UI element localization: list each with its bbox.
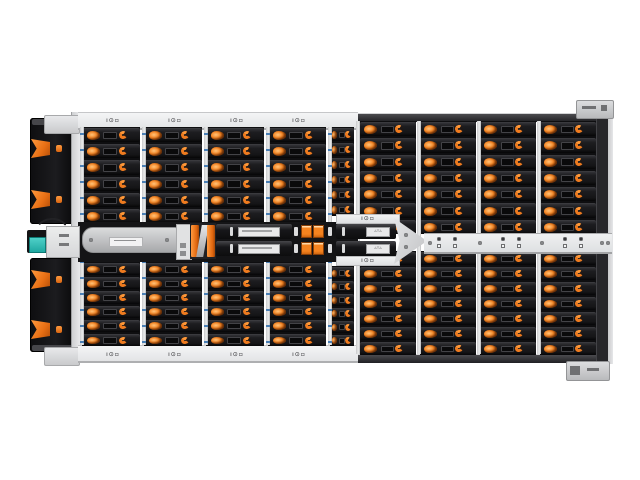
drive-slot <box>165 180 179 187</box>
drive-slot <box>103 132 117 139</box>
drive-column <box>206 127 264 223</box>
io-marker-icon <box>452 237 458 249</box>
drive-slot <box>165 266 179 272</box>
drive-bay <box>268 128 326 142</box>
drive-bay <box>82 193 140 207</box>
drive-bay <box>540 282 596 295</box>
io-marker-icon <box>562 237 568 249</box>
drive-column <box>330 266 354 346</box>
marker-square <box>517 244 521 248</box>
drive-column <box>206 262 264 346</box>
drive-bay <box>420 203 476 217</box>
bezel-latch-dot-icon <box>56 276 62 283</box>
drive-bay <box>360 342 416 355</box>
io-marker-icon <box>500 237 506 249</box>
drive-slot <box>501 271 514 278</box>
drive-bay <box>480 171 536 185</box>
drive-slot <box>289 180 303 187</box>
drive-slot <box>289 337 303 343</box>
drive-bay <box>540 155 596 169</box>
drive-bay <box>144 193 202 207</box>
drive-slot <box>165 213 179 220</box>
drive-bay <box>206 291 264 303</box>
drive-bay <box>206 128 264 142</box>
drive-bay <box>420 155 476 169</box>
drive-column <box>540 121 596 234</box>
marker-circle <box>563 237 567 241</box>
drive-slot <box>381 271 394 278</box>
storage-enclosure-photo: ı⊙▫ı⊙▫ı⊙▫ı⊙▫ ı⊙▫ı⊙▫ı⊙▫ı⊙▫ <box>0 0 640 480</box>
drive-bay <box>360 138 416 152</box>
drive-slot <box>381 126 394 133</box>
drive-bay <box>206 193 264 207</box>
drive-slot <box>441 286 454 293</box>
bezel-latch-dot-icon <box>56 145 62 152</box>
drive-slot <box>501 301 514 308</box>
drive-slot <box>103 266 117 272</box>
marker-circle <box>437 237 441 241</box>
drive-bay <box>360 327 416 340</box>
drive-slot <box>165 323 179 329</box>
drive-slot <box>103 337 117 343</box>
drive-bay <box>330 128 354 141</box>
drive-bay <box>480 297 536 310</box>
drive-bay <box>420 122 476 136</box>
drive-slot <box>165 295 179 301</box>
drive-slot <box>227 323 241 329</box>
drive-slot <box>227 281 241 287</box>
drive-bay <box>144 334 202 346</box>
drive-slot <box>501 175 514 182</box>
drive-slot <box>165 197 179 204</box>
drive-slot <box>501 286 514 293</box>
drive-slot <box>165 148 179 155</box>
drive-slot <box>339 297 345 303</box>
drive-bay <box>330 267 354 279</box>
drive-slot <box>165 281 179 287</box>
drive-slot <box>441 126 454 133</box>
drive-bay <box>206 144 264 158</box>
drive-bay <box>206 177 264 191</box>
drive-bay <box>540 187 596 201</box>
drive-bay <box>480 220 536 234</box>
right-mid-rail <box>424 233 612 254</box>
drive-slot <box>339 338 345 344</box>
drive-slot <box>339 324 345 330</box>
drive-slot <box>561 316 574 323</box>
drive-bay <box>144 291 202 303</box>
handle-bar <box>207 225 215 257</box>
drive-bay <box>420 312 476 325</box>
io-marker-icon <box>436 237 442 249</box>
bezel-latch-icon <box>31 190 50 209</box>
bezel-latch-icon <box>31 320 50 339</box>
drive-column <box>360 251 416 355</box>
drive-slot <box>381 175 394 182</box>
drive-slot <box>441 191 454 198</box>
drive-slot <box>339 162 345 169</box>
drive-slot <box>501 256 514 263</box>
marker-circle <box>453 237 457 241</box>
drive-bay <box>540 342 596 355</box>
drive-slot <box>441 271 454 278</box>
drive-slot <box>561 191 574 198</box>
drive-bay <box>82 144 140 158</box>
drive-bay <box>144 160 202 174</box>
drive-slot <box>441 316 454 323</box>
screw-icon <box>606 241 610 245</box>
drive-slot <box>339 311 345 317</box>
drive-bay <box>82 291 140 303</box>
drive-bay <box>268 209 326 223</box>
drive-bay <box>420 267 476 280</box>
drive-slot <box>561 331 574 338</box>
io-marker-icon: ı⊙▫ <box>292 118 306 124</box>
drive-slot <box>289 148 303 155</box>
drive-slot <box>441 158 454 165</box>
io-marker-icon: ı⊙▫ <box>361 257 375 264</box>
drive-slot <box>339 192 345 199</box>
drive-bay <box>268 177 326 191</box>
drive-bay <box>82 334 140 346</box>
drive-slot <box>289 323 303 329</box>
screw-icon <box>165 238 169 242</box>
drive-slot <box>289 309 303 315</box>
drive-slot <box>339 132 345 139</box>
drive-bay <box>268 160 326 174</box>
drive-slot <box>381 286 394 293</box>
drive-bay <box>206 263 264 275</box>
screw-icon <box>540 241 544 245</box>
io-marker-icon <box>516 237 522 249</box>
drive-column <box>330 127 354 216</box>
drive-bay <box>360 171 416 185</box>
drive-bay <box>360 187 416 201</box>
drive-bay <box>144 128 202 142</box>
drive-column <box>82 262 140 346</box>
drive-bay <box>420 342 476 355</box>
drive-bay <box>330 308 354 320</box>
drive-slot <box>441 224 454 231</box>
drive-slot <box>227 337 241 343</box>
drive-bay <box>330 281 354 293</box>
screw-icon <box>404 233 408 237</box>
drive-bay <box>480 203 536 217</box>
screw-icon <box>428 241 432 245</box>
drive-column <box>420 251 476 355</box>
drive-bay <box>540 312 596 325</box>
bottom-rail: ı⊙▫ı⊙▫ı⊙▫ı⊙▫ <box>78 345 358 363</box>
drive-slot <box>501 158 514 165</box>
drive-bay <box>480 187 536 201</box>
drive-slot <box>561 207 574 214</box>
drive-slot <box>441 331 454 338</box>
drive-bay <box>206 320 264 332</box>
drive-column <box>82 127 140 223</box>
drive-bay <box>360 122 416 136</box>
drive-slot <box>339 147 345 154</box>
drive-slot <box>381 346 394 353</box>
drive-bay <box>330 143 354 156</box>
bezel-latch-icon <box>31 139 50 158</box>
marker-square <box>579 244 583 248</box>
drive-slot <box>501 126 514 133</box>
marker-circle <box>517 237 521 241</box>
drive-bay <box>206 306 264 318</box>
rack-bracket-bottom-right <box>566 361 610 381</box>
drive-bay <box>206 277 264 289</box>
io-marker-icon: ı⊙▫ <box>230 352 244 358</box>
drive-slot <box>339 270 345 276</box>
marker-strip: ı⊙▫ <box>336 214 400 224</box>
drive-column <box>480 121 536 234</box>
drive-slot <box>103 164 117 171</box>
drive-column <box>480 251 536 355</box>
drive-bay <box>82 128 140 142</box>
drive-slot <box>381 331 394 338</box>
screw-icon <box>89 238 93 242</box>
drive-bay <box>360 155 416 169</box>
drive-column <box>144 262 202 346</box>
orange-latch-handle <box>190 223 216 259</box>
drive-bay <box>144 263 202 275</box>
drive-slot <box>561 224 574 231</box>
drive-slot <box>501 142 514 149</box>
canister-label: ▵▿▵ <box>366 227 390 237</box>
drive-slot <box>289 164 303 171</box>
drive-bay <box>206 334 264 346</box>
bezel-latch-icon <box>31 270 50 289</box>
qsfp-teal-pull-tab <box>29 237 46 253</box>
drive-bay <box>480 282 536 295</box>
drive-slot <box>501 191 514 198</box>
io-marker-icon: ı⊙▫ <box>106 352 120 358</box>
drive-bay <box>268 263 326 275</box>
drive-slot <box>561 256 574 263</box>
drive-bay <box>330 188 354 201</box>
drive-slot <box>381 316 394 323</box>
marker-circle <box>579 237 583 241</box>
bezel-latch-dot-icon <box>56 326 62 333</box>
slide-rail <box>82 227 178 253</box>
drive-bay <box>144 177 202 191</box>
drive-slot <box>103 323 117 329</box>
drive-bay <box>330 158 354 171</box>
drive-slot <box>165 309 179 315</box>
drive-slot <box>381 142 394 149</box>
io-marker-icon: ı⊙▫ <box>361 215 375 222</box>
drive-bay <box>144 306 202 318</box>
drive-bay <box>144 320 202 332</box>
drive-slot <box>103 295 117 301</box>
drive-bay <box>144 277 202 289</box>
drive-bay <box>480 342 536 355</box>
drive-column <box>540 251 596 355</box>
drive-bay <box>540 171 596 185</box>
marker-square <box>453 244 457 248</box>
drive-bay <box>82 306 140 318</box>
drive-slot <box>227 309 241 315</box>
drive-bay <box>206 160 264 174</box>
drive-column <box>268 262 326 346</box>
canister-label: ▵▿▵ <box>366 244 390 254</box>
drive-bay <box>82 209 140 223</box>
screw-icon <box>478 241 482 245</box>
drive-slot <box>289 266 303 272</box>
drive-bay <box>268 291 326 303</box>
drive-bay <box>480 267 536 280</box>
drive-slot <box>561 142 574 149</box>
drive-bay <box>82 277 140 289</box>
drive-bay <box>268 334 326 346</box>
orange-clip-block <box>292 241 336 256</box>
drive-slot <box>441 175 454 182</box>
drive-bay <box>420 297 476 310</box>
drive-bay <box>540 327 596 340</box>
chassis-corner-bottom-left <box>44 347 80 366</box>
drive-slot <box>103 148 117 155</box>
drive-bay <box>144 144 202 158</box>
drive-bay <box>540 122 596 136</box>
io-marker-icon: ı⊙▫ <box>168 352 182 358</box>
rail-label <box>109 237 143 247</box>
drive-bay <box>420 327 476 340</box>
drive-bay <box>268 320 326 332</box>
drive-slot <box>227 197 241 204</box>
drive-slot <box>165 337 179 343</box>
ssd-canister: ▵▿▵ <box>336 241 396 256</box>
drive-slot <box>103 180 117 187</box>
ssd-canister: ▵▿▵ <box>336 224 396 239</box>
io-marker-icon: ı⊙▫ <box>230 118 244 124</box>
drive-bay <box>540 220 596 234</box>
drive-column <box>420 121 476 234</box>
drive-bay <box>540 297 596 310</box>
drive-bay <box>144 209 202 223</box>
drive-slot <box>441 256 454 263</box>
io-marker-icon: ı⊙▫ <box>292 352 306 358</box>
ssd-canister <box>216 224 292 239</box>
drive-bay <box>480 155 536 169</box>
drive-bay <box>420 282 476 295</box>
screw-icon <box>600 241 604 245</box>
bezel-latch-dot-icon <box>56 196 62 203</box>
drive-slot <box>289 213 303 220</box>
drive-slot <box>289 295 303 301</box>
drive-slot <box>289 281 303 287</box>
drive-slot <box>501 224 514 231</box>
drive-slot <box>339 284 345 290</box>
drive-bay <box>82 320 140 332</box>
ssd-canister <box>216 241 292 256</box>
drive-bay <box>268 144 326 158</box>
drive-bay <box>330 335 354 347</box>
drive-slot <box>381 158 394 165</box>
drive-slot <box>227 213 241 220</box>
drive-slot <box>501 331 514 338</box>
drive-bay <box>268 277 326 289</box>
drive-bay <box>480 122 536 136</box>
drive-slot <box>561 301 574 308</box>
marker-square <box>501 244 505 248</box>
drive-bay <box>360 297 416 310</box>
drive-slot <box>501 207 514 214</box>
drive-slot <box>227 180 241 187</box>
drive-slot <box>227 266 241 272</box>
drive-bay <box>540 267 596 280</box>
drive-slot <box>561 286 574 293</box>
drive-bay <box>420 171 476 185</box>
drive-slot <box>441 346 454 353</box>
io-marker-icon <box>578 237 584 249</box>
drive-bay <box>480 138 536 152</box>
marker-square <box>563 244 567 248</box>
drive-slot <box>441 207 454 214</box>
drive-bay <box>330 294 354 306</box>
drive-slot <box>561 175 574 182</box>
drive-bay <box>420 187 476 201</box>
drive-slot <box>103 281 117 287</box>
drive-slot <box>227 295 241 301</box>
drive-bay <box>360 282 416 295</box>
drive-bay <box>268 306 326 318</box>
canister-label <box>238 244 280 254</box>
io-marker-icon: ı⊙▫ <box>168 118 182 124</box>
canister-label <box>238 227 280 237</box>
drive-bay <box>480 312 536 325</box>
drive-bay <box>82 177 140 191</box>
drive-slot <box>339 177 345 184</box>
drive-slot <box>103 213 117 220</box>
marker-square <box>437 244 441 248</box>
drive-slot <box>339 207 345 214</box>
drive-column <box>144 127 202 223</box>
drive-slot <box>381 301 394 308</box>
orange-clip-block <box>292 224 336 239</box>
drive-bay <box>330 321 354 333</box>
drive-slot <box>561 126 574 133</box>
drive-bay <box>480 327 536 340</box>
drive-slot <box>103 309 117 315</box>
drive-slot <box>289 197 303 204</box>
qsfp-cable-module <box>46 226 80 258</box>
drive-slot <box>441 301 454 308</box>
drive-bay <box>420 138 476 152</box>
drive-bay <box>360 267 416 280</box>
chassis-corner-top-left <box>44 115 80 134</box>
drive-bay <box>330 173 354 186</box>
drive-slot <box>441 142 454 149</box>
drive-bay <box>360 312 416 325</box>
drive-bay <box>206 209 264 223</box>
drive-slot <box>289 132 303 139</box>
drive-slot <box>561 158 574 165</box>
drive-slot <box>165 164 179 171</box>
drive-slot <box>103 197 117 204</box>
rack-bracket-top-right <box>576 100 614 119</box>
drive-bay <box>268 193 326 207</box>
drive-bay <box>420 220 476 234</box>
drive-column <box>268 127 326 223</box>
screw-icon <box>404 245 408 249</box>
drive-slot <box>227 148 241 155</box>
drive-bay <box>540 138 596 152</box>
drive-slot <box>561 271 574 278</box>
drive-slot <box>227 132 241 139</box>
drive-slot <box>501 346 514 353</box>
drive-slot <box>227 164 241 171</box>
marker-circle <box>501 237 505 241</box>
